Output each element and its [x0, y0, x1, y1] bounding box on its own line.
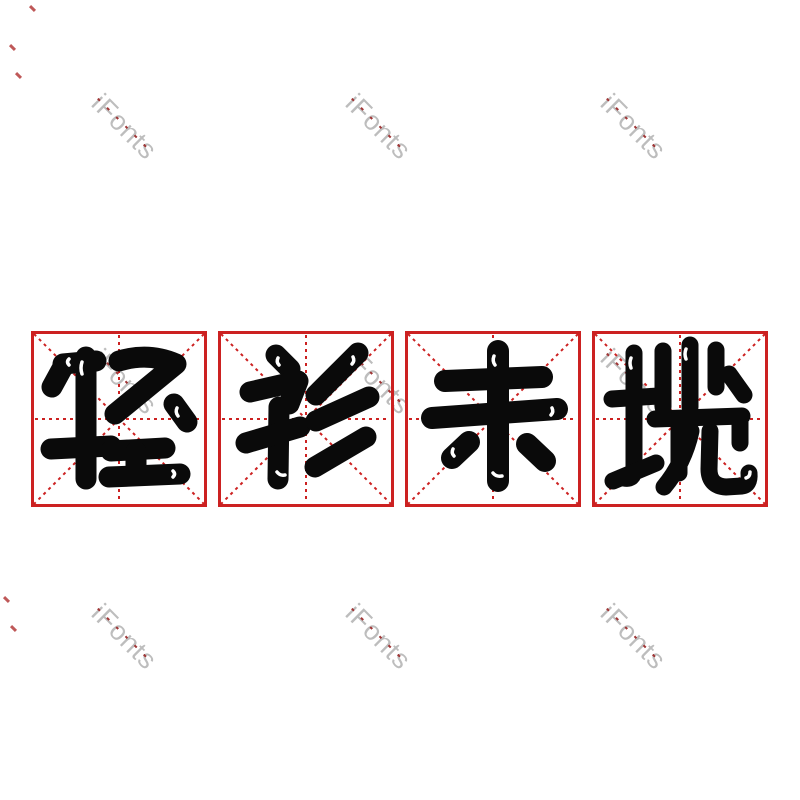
glyph-strokes: [246, 353, 369, 479]
watermark: iFonts: [340, 88, 417, 165]
stray-red-mark: [9, 44, 16, 51]
glyph-strokes: [432, 351, 557, 481]
character-cell-3: 未: [405, 331, 581, 507]
stray-red-mark: [10, 625, 17, 632]
character-cell-2: 衫: [218, 331, 394, 507]
image-canvas: iFontsiFontsiFontsiFontsiFontsiFontsiFon…: [0, 0, 800, 800]
watermark: iFonts: [340, 598, 417, 675]
stray-red-mark: [3, 596, 10, 603]
character-cell-1: 轻: [31, 331, 207, 507]
watermark: iFonts: [595, 598, 672, 675]
glyph-strokes: [612, 345, 749, 487]
watermark: iFonts: [595, 88, 672, 165]
character-cell-4: 揽: [592, 331, 768, 507]
stray-red-mark: [15, 72, 22, 79]
watermark: iFonts: [86, 598, 163, 675]
stray-red-mark: [29, 5, 36, 12]
watermark: iFonts: [86, 88, 163, 165]
